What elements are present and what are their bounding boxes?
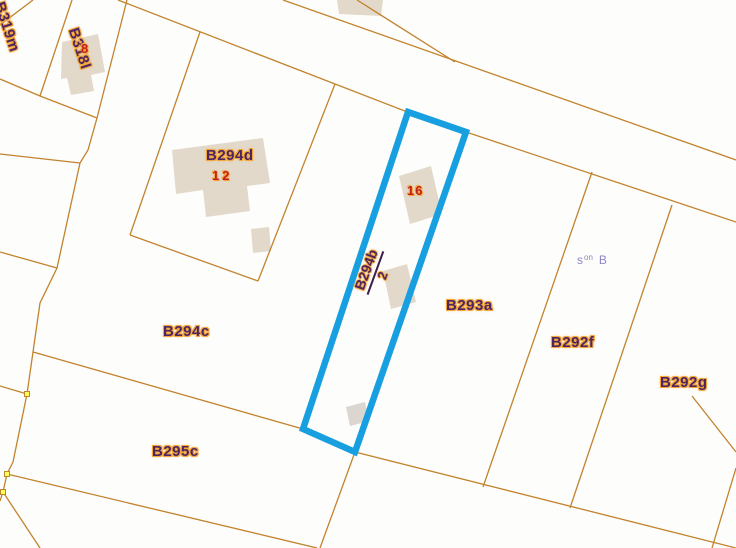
vertex-marker-2: [1, 490, 6, 495]
cadastral-map-viewport[interactable]: B294b 2 sonB B319mB318lB294dB294cB295cB2…: [0, 0, 736, 548]
vertex-marker-0: [25, 392, 30, 397]
west-branch-2: [0, 252, 57, 268]
parcel-label-b295c[interactable]: B295c: [152, 444, 199, 459]
west-branch-3: [0, 386, 27, 394]
parcel-label-b292g[interactable]: B292g: [660, 375, 708, 390]
vertex-marker-1: [5, 472, 10, 477]
road-upper-edge: [283, 0, 736, 160]
b294c-b295c-line: [33, 352, 736, 548]
b294d-west-line: [130, 32, 200, 235]
southeast-edge-line-2: [712, 468, 736, 548]
b295c-south-line: [7, 474, 317, 548]
building-b294d-annex: [251, 227, 271, 253]
parcel-label-b294d[interactable]: B294d: [206, 148, 254, 163]
west-branch-1: [0, 154, 80, 163]
b292f-b292g-line: [570, 205, 672, 508]
parcel-label-b292f[interactable]: B292f: [551, 335, 594, 350]
b294d-south-line: [130, 235, 258, 281]
b293a-b292f-line: [483, 172, 592, 487]
parcel-tip-south-line: [320, 452, 355, 548]
parcel-label-b293a[interactable]: B293a: [446, 298, 493, 313]
southeast-edge-line-1: [692, 396, 736, 452]
southwest-corner-line: [3, 492, 40, 548]
parcel-label-b294c[interactable]: B294c: [163, 324, 210, 339]
